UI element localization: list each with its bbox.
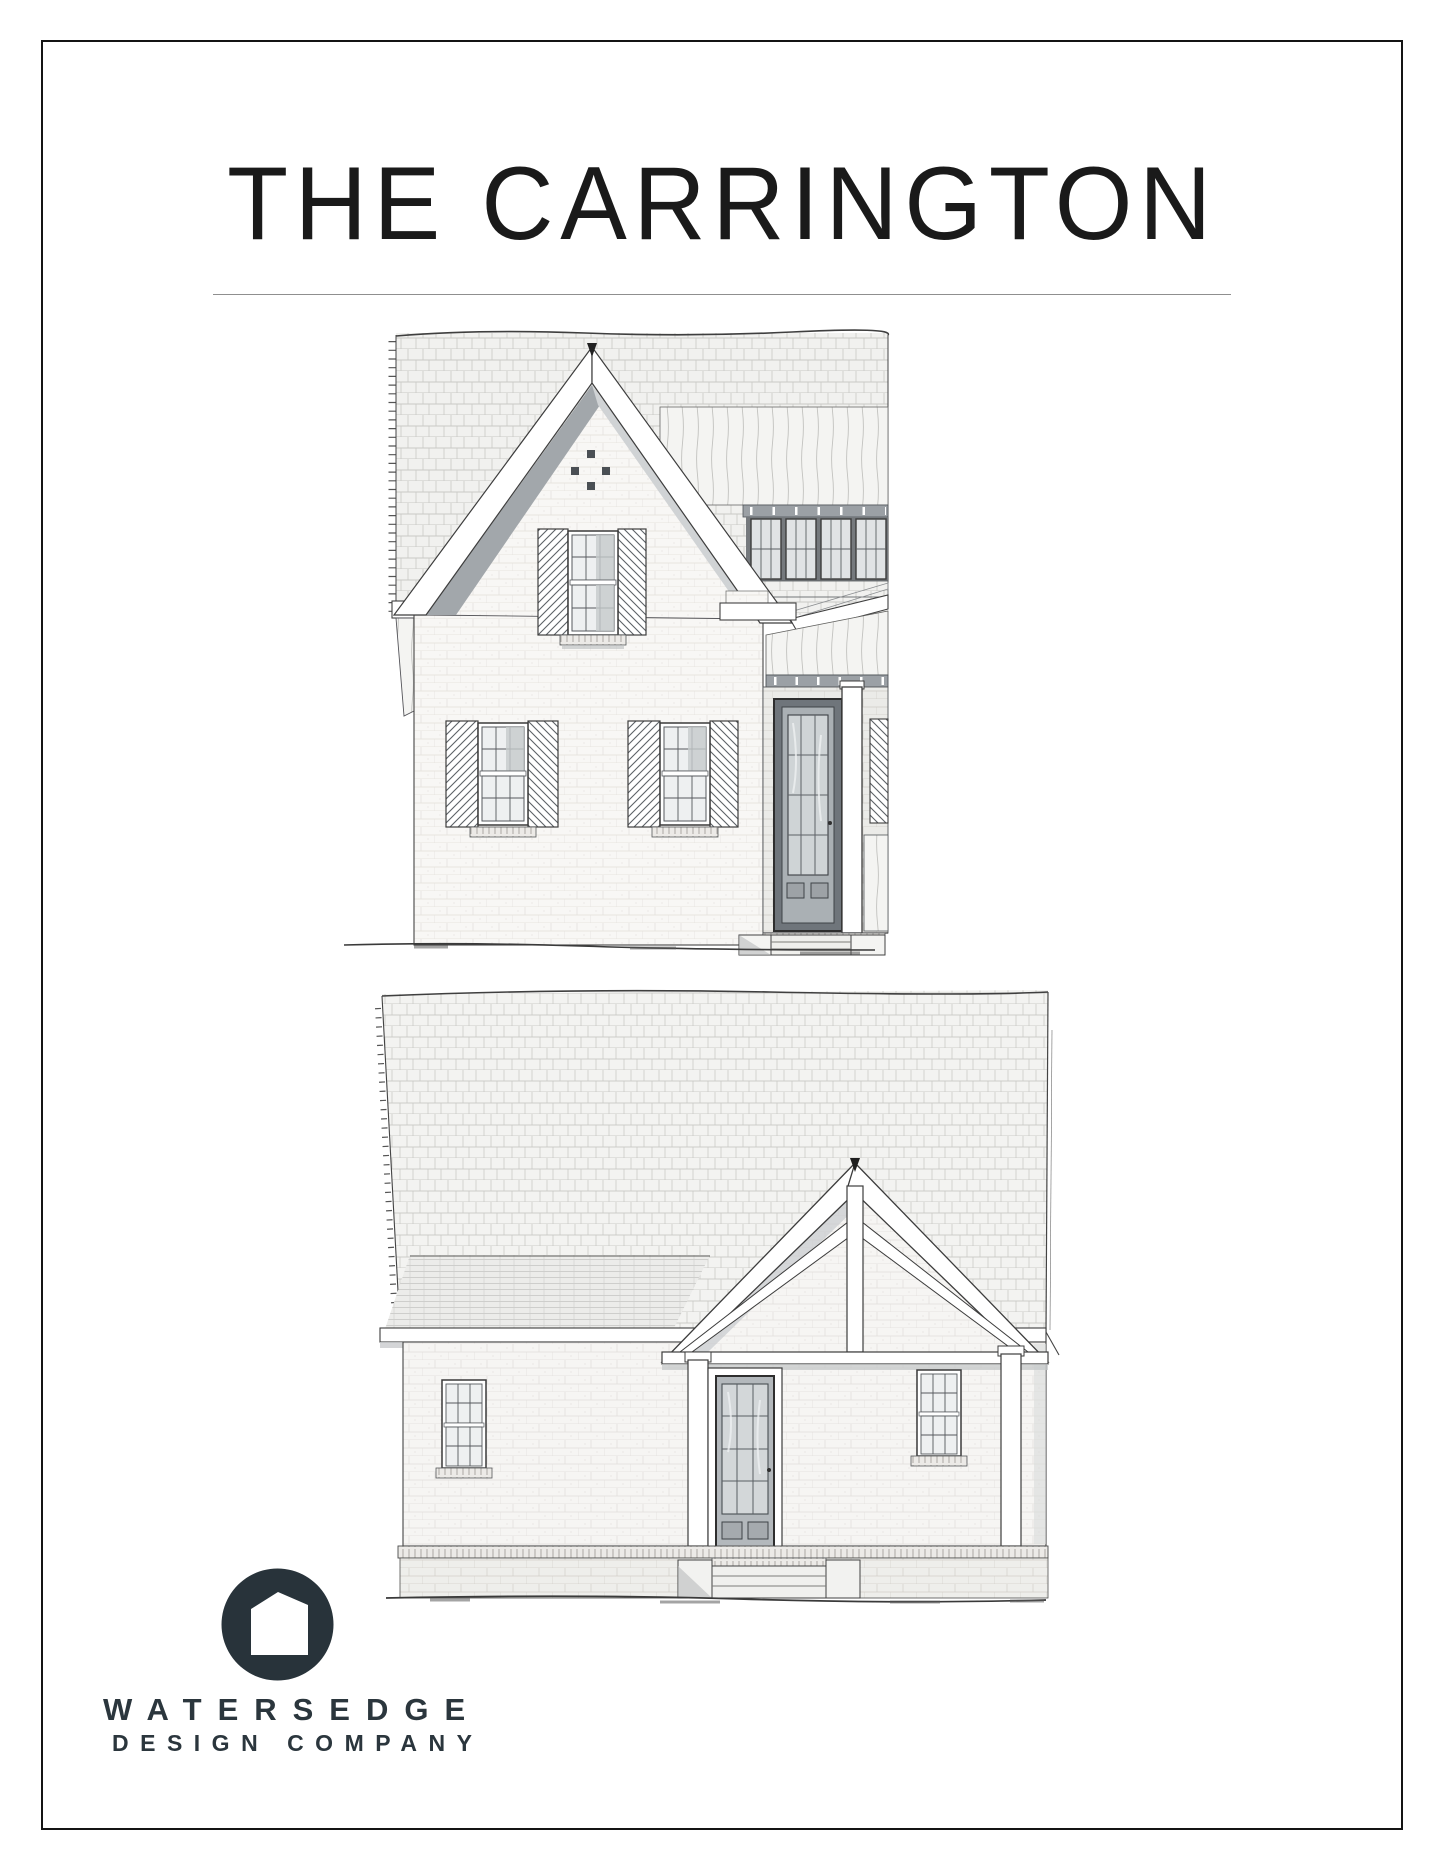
front-window-right xyxy=(628,721,738,837)
house-in-circle-icon xyxy=(222,1569,334,1681)
watersedge-logo house-in-circle-icon xyxy=(221,1568,334,1681)
front-porch xyxy=(763,681,888,933)
front-door xyxy=(774,699,842,931)
rear-steps xyxy=(678,1558,860,1598)
front-elevation-drawing xyxy=(330,283,895,958)
rear-elevation-drawing xyxy=(370,960,1060,1610)
brand-name: WATERSEDGE xyxy=(103,1692,481,1728)
front-dormer-windows xyxy=(743,505,888,597)
rear-door xyxy=(708,1368,782,1564)
brand-tagline: DESIGN COMPANY xyxy=(112,1730,483,1757)
page-title: THE CARRINGTON xyxy=(29,152,1416,256)
front-window-left xyxy=(446,721,558,837)
rear-window-left xyxy=(436,1380,492,1478)
front-upper-window xyxy=(538,529,646,649)
rear-window-right xyxy=(911,1370,967,1466)
